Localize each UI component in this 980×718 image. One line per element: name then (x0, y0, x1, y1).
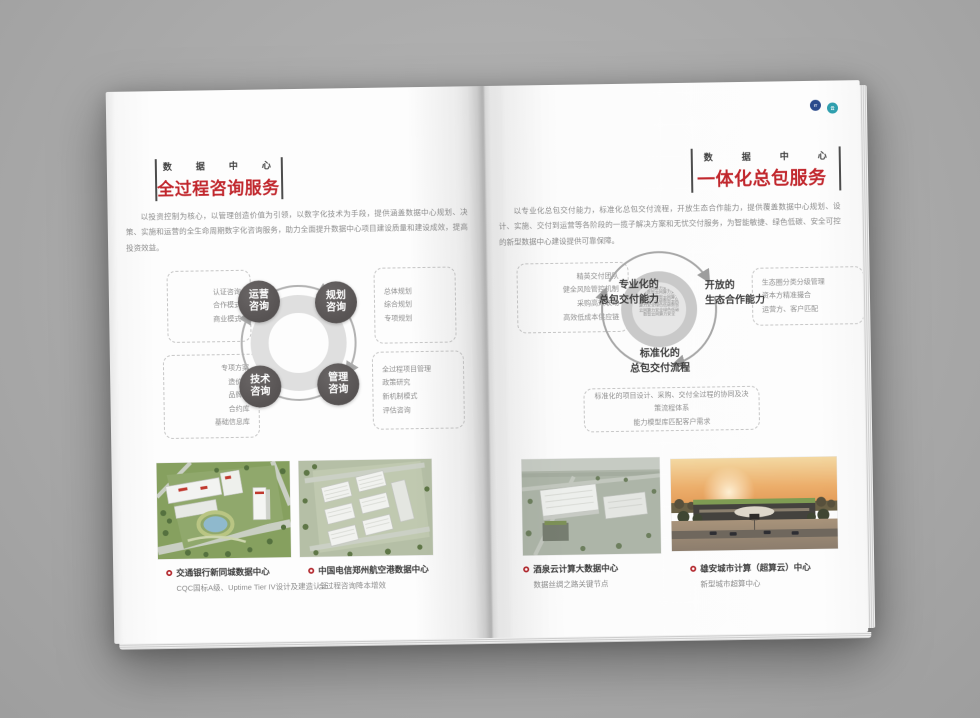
case-subtitle: 全过程咨询降本增效 (318, 579, 429, 592)
cycle-arrows-icon (148, 255, 451, 440)
case-caption: 酒泉云计算大数据中心 数据丝绸之路关键节点 (523, 562, 618, 590)
case-subtitle: 新型城市超算中心 (700, 577, 811, 590)
label-open-ecosystem: 开放的 生态合作能力 (705, 277, 815, 309)
header-bar-left (691, 149, 694, 193)
case-subtitle: 数据丝绸之路关键节点 (533, 578, 618, 590)
publisher-logo-dark-icon: IT (810, 100, 821, 111)
case-photo-telecom (298, 459, 432, 557)
case-photo-jiuquan (521, 457, 660, 555)
aerial-campus-render-icon (157, 461, 291, 559)
turnkey-capability-diagram: 精英交付团队 健全风险管控机制 采购高效联动 高效低成本供应链 生态圈分类分级管… (510, 244, 828, 439)
case-title: 酒泉云计算大数据中心 (533, 562, 618, 575)
case-bullet-icon (690, 566, 696, 572)
case-bullet-icon (166, 570, 172, 576)
brochure-spread: 数据中心 全过程咨询服务 以投资控制为核心，以管理创造价值为引领，以数字化技术为… (106, 80, 869, 650)
aerial-datacenter-render-icon (298, 459, 432, 557)
left-page: 数据中心 全过程咨询服务 以投资控制为核心，以管理创造价值为引领，以数字化技术为… (106, 86, 492, 644)
right-page-title: 一体化总包服务 (697, 164, 827, 192)
node-label-line: 规划 (326, 290, 346, 302)
case-title: 雄安城市计算（超算云）中心 (700, 561, 811, 575)
left-page-intro: 以投资控制为核心，以管理创造价值为引领，以数字化技术为手段，提供涵盖数据中心规划… (126, 204, 469, 255)
right-page: IT 云 数据中心 一体化总包服务 以专业化总包交付能力，标准化总包交付流程，开… (483, 80, 869, 638)
case-caption: 中国电信郑州航空港数据中心 全过程咨询降本增效 (308, 563, 429, 592)
publisher-logo-teal-icon: 云 (827, 102, 838, 113)
aerial-cloud-datacenter-icon (521, 457, 660, 555)
consulting-cycle-diagram: 认证咨询 合作模式 商业模式 总体规划 综合规划 专项规划 专项方案 造价库 品… (148, 255, 451, 440)
node-label-line: 咨询 (328, 384, 348, 396)
case-caption: 雄安城市计算（超算云）中心 新型城市超算中心 (690, 561, 811, 590)
right-page-eyebrow: 数据中心 (704, 148, 856, 163)
case-title: 交通银行新同城数据中心 (176, 565, 270, 578)
label-standard-process: 标准化的 总包交付流程 (600, 345, 720, 377)
node-label-line: 技术 (250, 374, 270, 386)
label-professional-capability: 专业化的 总包交付能力 (555, 277, 659, 309)
sunset-supercomputing-center-icon (671, 457, 838, 552)
left-page-title: 全过程咨询服务 (157, 173, 280, 200)
case-bullet-icon (308, 568, 314, 574)
node-label-line: 咨询 (250, 386, 270, 398)
case-subtitle: CQC国标A级、Uptime Tier IV设计及建造认证 (176, 581, 328, 594)
case-bullet-icon (523, 566, 529, 572)
case-photo-xiongan (671, 457, 838, 552)
right-page-intro: 以专业化总包交付能力，标准化总包交付流程，开放生态合作能力，提供覆盖数据中心规划… (498, 198, 841, 249)
left-page-eyebrow: 数据中心 (163, 158, 295, 173)
case-caption: 交通银行新同城数据中心 CQC国标A级、Uptime Tier IV设计及建造认… (166, 565, 328, 595)
case-photo-bocom (157, 461, 291, 559)
node-label-line: 咨询 (249, 301, 269, 313)
node-label-line: 管理 (328, 372, 348, 384)
node-label-line: 运营 (249, 289, 269, 301)
node-label-line: 咨询 (326, 302, 346, 314)
case-title: 中国电信郑州航空港数据中心 (318, 563, 429, 577)
